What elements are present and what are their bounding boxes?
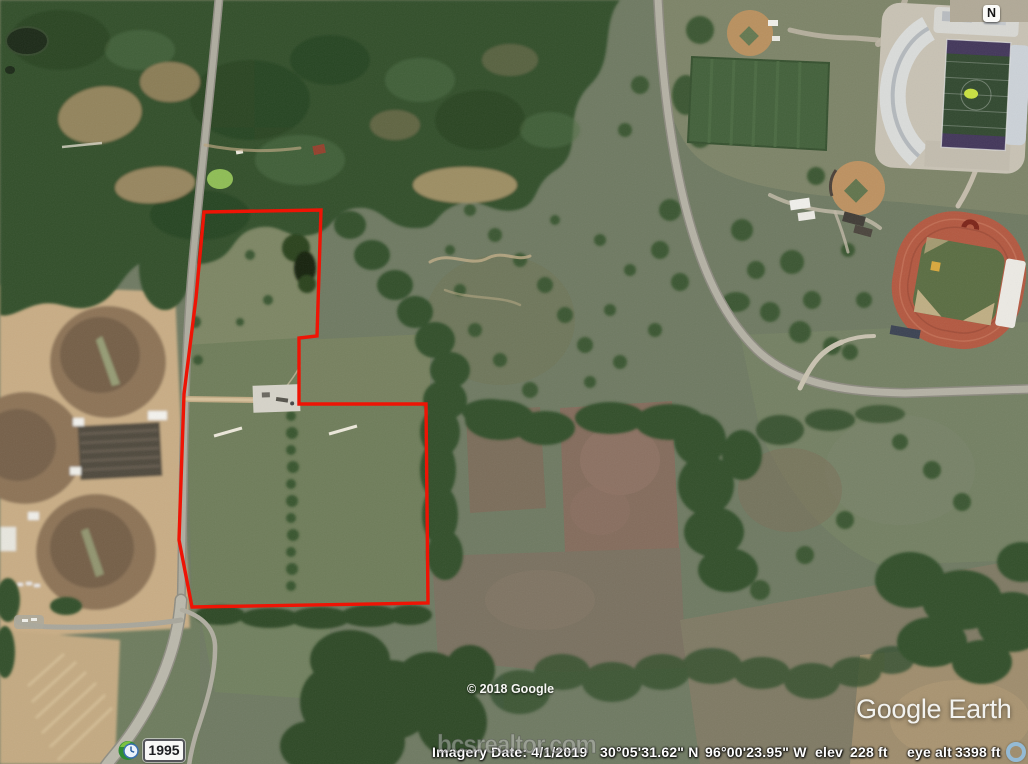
satellite-map-canvas[interactable] bbox=[0, 0, 1028, 764]
copyright-notice: © 2018 Google bbox=[467, 682, 554, 696]
historical-imagery-icon[interactable] bbox=[117, 739, 142, 762]
compass-north-button[interactable]: N bbox=[983, 5, 1000, 22]
status-longitude: 96°00'23.95" W bbox=[705, 744, 807, 760]
road-shield-1995: 1995 bbox=[143, 739, 185, 762]
google-earth-logo: Google Earth bbox=[856, 694, 1012, 725]
image-grain bbox=[0, 0, 1028, 764]
status-elev-value: 228 ft bbox=[850, 744, 888, 760]
status-eye-alt-value: 3398 ft bbox=[955, 744, 1001, 760]
status-latitude: 30°05'31.62" N bbox=[600, 744, 699, 760]
realtor-watermark: bcsrealtor.com bbox=[437, 729, 596, 760]
google-earth-viewport[interactable]: bcsrealtor.com © 2018 Google Google Eart… bbox=[0, 0, 1028, 764]
status-elev-label: elev bbox=[815, 744, 843, 760]
progress-ring-icon bbox=[1006, 742, 1026, 762]
status-eye-alt-label: eye alt bbox=[907, 744, 952, 760]
